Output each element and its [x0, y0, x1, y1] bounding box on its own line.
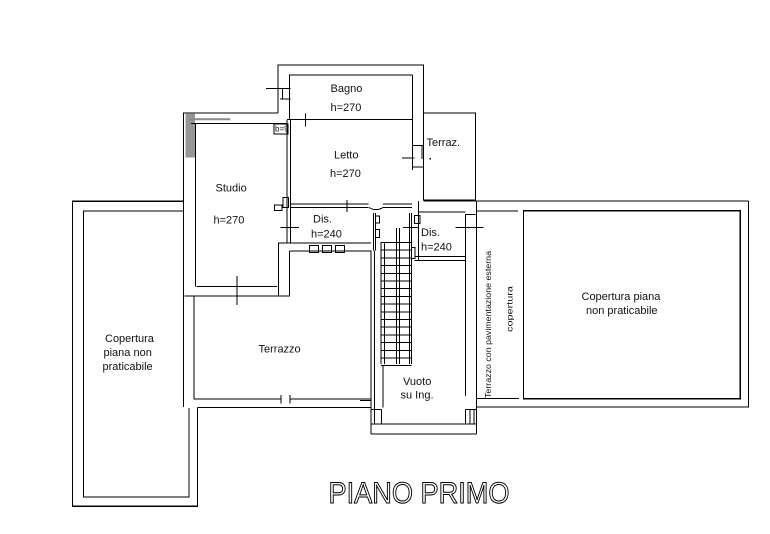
svg-text:Terrazzo con pavimentazione es: Terrazzo con pavimentazione esterna [483, 251, 493, 398]
svg-text:h=270: h=270 [330, 168, 361, 180]
svg-text:praticabile: praticabile [103, 361, 153, 373]
svg-text:Dis.: Dis. [313, 214, 332, 226]
svg-text:su Ing.: su Ing. [401, 390, 434, 402]
svg-text:piana non: piana non [104, 347, 152, 359]
svg-text:Letto: Letto [334, 150, 358, 162]
svg-text:Terraz.: Terraz. [427, 137, 461, 149]
svg-text:h=240: h=240 [421, 242, 452, 254]
svg-text:Terrazzo: Terrazzo [259, 343, 301, 355]
svg-text:Vuoto: Vuoto [403, 376, 431, 388]
svg-text:Bagno: Bagno [331, 83, 363, 95]
svg-text:h=270: h=270 [331, 102, 362, 114]
svg-text:Copertura piana: Copertura piana [582, 291, 662, 303]
svg-text:PIANO PRIMO: PIANO PRIMO [329, 477, 510, 510]
svg-text:Studio: Studio [216, 183, 247, 195]
svg-text:h=240: h=240 [311, 229, 342, 241]
svg-text:Dis.: Dis. [421, 227, 440, 239]
svg-text:b=9: b=9 [275, 125, 289, 134]
svg-text:copertura: copertura [505, 286, 515, 332]
svg-text:h=270: h=270 [214, 215, 245, 227]
svg-text:Copertura: Copertura [105, 333, 155, 345]
svg-text:non praticabile: non praticabile [586, 305, 658, 317]
